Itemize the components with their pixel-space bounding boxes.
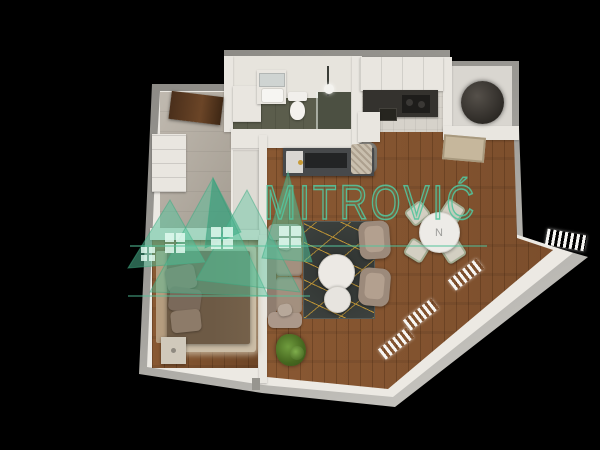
watermark-underline [130,245,487,247]
watermark-brand-text: MITROVIĆ [264,176,477,231]
floorplan-scene: N [0,0,600,450]
